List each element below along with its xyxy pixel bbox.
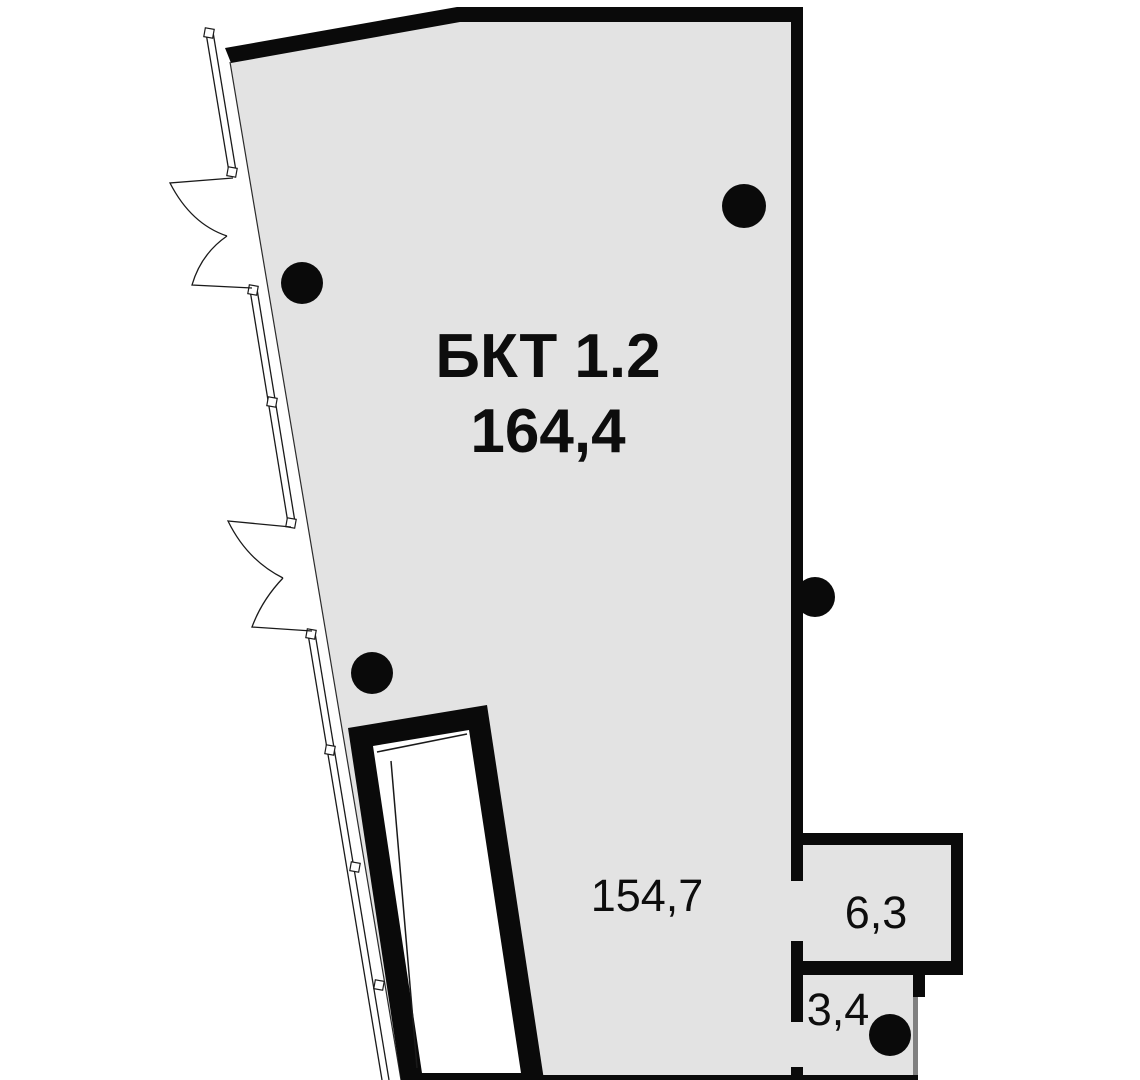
- room-title: БКТ 1.2: [435, 322, 660, 391]
- wall-top: [457, 7, 803, 22]
- wall-right-upper: [791, 7, 803, 881]
- column-dot: [281, 262, 323, 304]
- room-3-4-label: 3,4: [807, 984, 870, 1035]
- zone-area-label: 154,7: [591, 870, 704, 921]
- window-cap: [204, 28, 214, 38]
- window-cap: [374, 980, 384, 990]
- doorway-to-6-3: [791, 881, 803, 941]
- column-dot: [869, 1014, 911, 1056]
- wall-room-6-3-bottom: [791, 961, 963, 975]
- wall-room-3-4-stub: [913, 975, 925, 997]
- column-dot: [351, 652, 393, 694]
- floor-plan-image: БКТ 1.2 164,4 154,7 6,3 3,4: [0, 0, 1140, 1080]
- wall-room-6-3-top: [791, 833, 963, 845]
- floor-plan-svg: БКТ 1.2 164,4 154,7 6,3 3,4: [0, 0, 1140, 1080]
- window-cap: [325, 745, 335, 755]
- window-cap: [248, 285, 258, 295]
- window-cap: [267, 397, 277, 407]
- column-dot: [722, 184, 766, 228]
- column-dot: [795, 577, 835, 617]
- room-area: 164,4: [470, 397, 626, 466]
- wall-room-6-3-right: [951, 833, 963, 975]
- room-6-3-label: 6,3: [845, 887, 908, 938]
- window-cap: [350, 862, 360, 872]
- wall-right-middle: [791, 941, 803, 1022]
- window-cap: [227, 167, 237, 177]
- partition-room-3-4-right: [913, 997, 918, 1075]
- doorway-to-3-4: [791, 1022, 803, 1067]
